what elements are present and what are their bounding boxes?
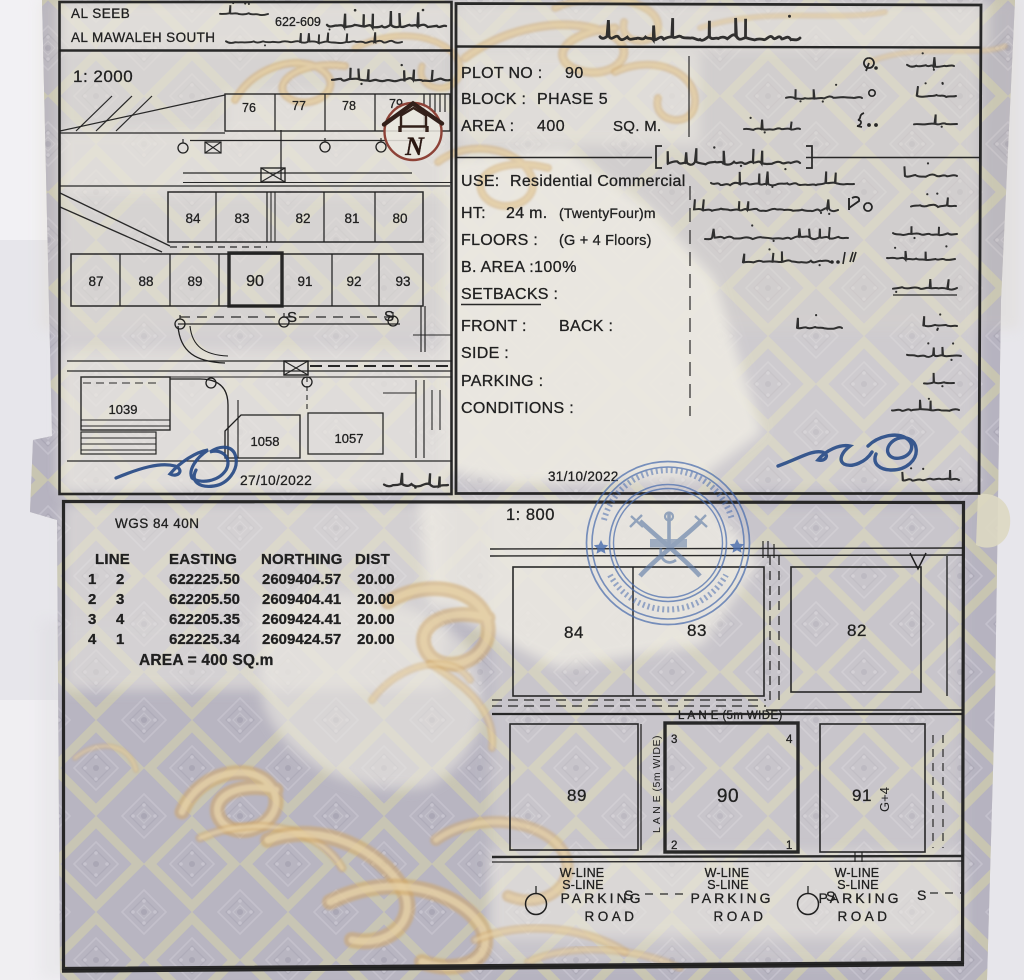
svg-text:80: 80 [392,211,407,226]
svg-text:82: 82 [847,621,867,640]
svg-text:AREA = 400 SQ.m: AREA = 400 SQ.m [139,652,274,669]
svg-text:PARKING: PARKING [691,890,774,906]
svg-text:2609424.41: 2609424.41 [262,611,341,628]
svg-text:82: 82 [295,211,310,226]
svg-text:BACK :: BACK : [559,318,613,335]
svg-text:4: 4 [116,611,125,628]
svg-text:84: 84 [564,623,584,642]
svg-text:1058: 1058 [251,434,280,449]
svg-text:2609404.41: 2609404.41 [262,591,341,608]
svg-text:83: 83 [234,211,249,226]
svg-text:20.00: 20.00 [357,571,395,588]
svg-text:622205.50: 622205.50 [169,591,240,608]
svg-text:622205.35: 622205.35 [169,611,240,628]
svg-text:20.00: 20.00 [357,631,395,648]
svg-text:20.00: 20.00 [357,591,395,608]
svg-text:S: S [917,887,926,903]
svg-text:91: 91 [852,786,872,805]
svg-text:ROAD: ROAD [713,909,766,924]
svg-text:NORTHING: NORTHING [261,551,343,568]
svg-text:90: 90 [246,273,264,290]
svg-text:4: 4 [88,631,97,648]
svg-text:SQ. M.: SQ. M. [613,118,661,135]
svg-text:77: 77 [292,99,306,113]
svg-text:622-609: 622-609 [275,15,321,29]
svg-text:4: 4 [786,734,793,746]
svg-text:83: 83 [687,621,707,640]
svg-text:LINE: LINE [95,551,130,568]
svg-text:622225.50: 622225.50 [169,571,240,588]
svg-text:1: 2000: 1: 2000 [73,67,133,86]
svg-text:2609404.57: 2609404.57 [262,571,341,588]
svg-text:ROAD: ROAD [584,909,637,924]
svg-text:EASTING: EASTING [169,551,237,568]
svg-text:1: 1 [786,840,792,852]
svg-text:Residential Commercial: Residential Commercial [510,173,686,190]
svg-text:76: 76 [242,101,256,115]
svg-text:91: 91 [297,274,312,289]
svg-text:FLOORS :: FLOORS : [461,232,538,249]
svg-text:1: 800: 1: 800 [506,506,555,524]
svg-text:87: 87 [88,274,103,289]
svg-text:89: 89 [567,786,587,805]
svg-text:78: 78 [342,99,356,113]
svg-text:81: 81 [344,211,359,226]
svg-text:WGS 84 40N: WGS 84 40N [115,516,200,531]
svg-text:100%: 100% [534,259,577,276]
svg-text:DIST: DIST [355,551,390,568]
svg-text:USE:: USE: [461,173,500,190]
svg-text:CONDITIONS :: CONDITIONS : [461,400,574,417]
svg-text:92: 92 [346,274,361,289]
svg-text:93: 93 [395,274,410,289]
svg-text:N: N [404,132,425,161]
svg-text:2609424.57: 2609424.57 [262,631,341,648]
svg-text:PARKING :: PARKING : [461,373,543,390]
svg-text:L A N E (5m WIDE): L A N E (5m WIDE) [678,710,783,722]
svg-text:1039: 1039 [109,402,138,417]
svg-text:24 m.: 24 m. [506,205,548,222]
svg-text:3: 3 [88,611,96,628]
svg-text:AL MAWALEH SOUTH: AL MAWALEH SOUTH [71,30,215,45]
svg-text:(G + 4 Floors): (G + 4 Floors) [559,233,652,249]
svg-text:BLOCK :: BLOCK : [461,91,526,108]
svg-text:3: 3 [116,591,124,608]
svg-text:S: S [826,888,835,904]
svg-text:G+4: G+4 [877,787,892,812]
svg-text:PHASE 5: PHASE 5 [537,91,608,108]
svg-text:SIDE :: SIDE : [461,345,509,362]
svg-text:31/10/2022: 31/10/2022 [548,469,619,484]
svg-text:AL SEEB: AL SEEB [71,6,130,21]
svg-text:27/10/2022: 27/10/2022 [240,473,312,488]
svg-text:L A N E (5m WIDE): L A N E (5m WIDE) [651,735,663,833]
svg-text:2: 2 [671,840,677,852]
svg-text:AREA :: AREA : [461,118,514,135]
svg-text:SETBACKS :: SETBACKS : [461,286,558,303]
svg-text:HT:: HT: [461,205,486,222]
svg-text:90: 90 [717,786,739,807]
svg-text:90: 90 [565,65,584,82]
svg-text:2: 2 [116,571,124,588]
svg-text:622225.34: 622225.34 [169,631,241,648]
svg-text:20.00: 20.00 [357,611,395,628]
svg-text:2: 2 [88,591,96,608]
svg-text:B. AREA :: B. AREA : [461,259,534,276]
svg-text:S: S [624,887,633,903]
svg-text:(TwentyFour)m: (TwentyFour)m [559,205,656,221]
svg-text:84: 84 [185,211,201,226]
svg-text:88: 88 [138,274,153,289]
svg-text:400: 400 [537,118,565,135]
svg-text:ROAD: ROAD [837,909,890,924]
svg-text:3: 3 [671,734,677,746]
svg-text:89: 89 [187,274,202,289]
svg-text:1057: 1057 [335,431,364,446]
svg-text:1: 1 [116,631,124,648]
svg-text:FRONT :: FRONT : [461,318,527,335]
svg-text:PLOT NO :: PLOT NO : [461,65,543,82]
svg-text:1: 1 [88,571,96,588]
